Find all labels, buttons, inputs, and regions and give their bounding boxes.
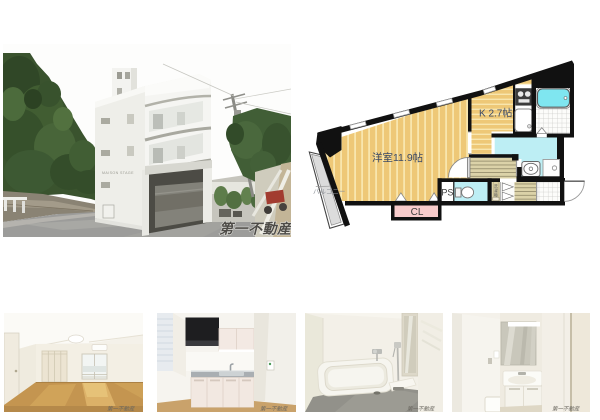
svg-text:第一不動産: 第一不動産 xyxy=(107,406,135,413)
svg-text:CL: CL xyxy=(411,207,424,218)
svg-text:バルコニー: バルコニー xyxy=(313,188,345,196)
svg-text:第一不動産: 第一不動産 xyxy=(219,221,291,237)
svg-text:K 2.7帖: K 2.7帖 xyxy=(479,107,512,120)
svg-text:第一不動産: 第一不動産 xyxy=(407,406,435,413)
svg-text:PS: PS xyxy=(441,187,453,197)
svg-text:MAISON STAGE: MAISON STAGE xyxy=(102,171,134,175)
svg-text:第一不動産: 第一不動産 xyxy=(260,406,288,413)
svg-text:洋室11.9帖: 洋室11.9帖 xyxy=(372,151,424,164)
svg-text:機: 機 xyxy=(494,192,498,198)
svg-text:第一不動産: 第一不動産 xyxy=(552,406,580,413)
